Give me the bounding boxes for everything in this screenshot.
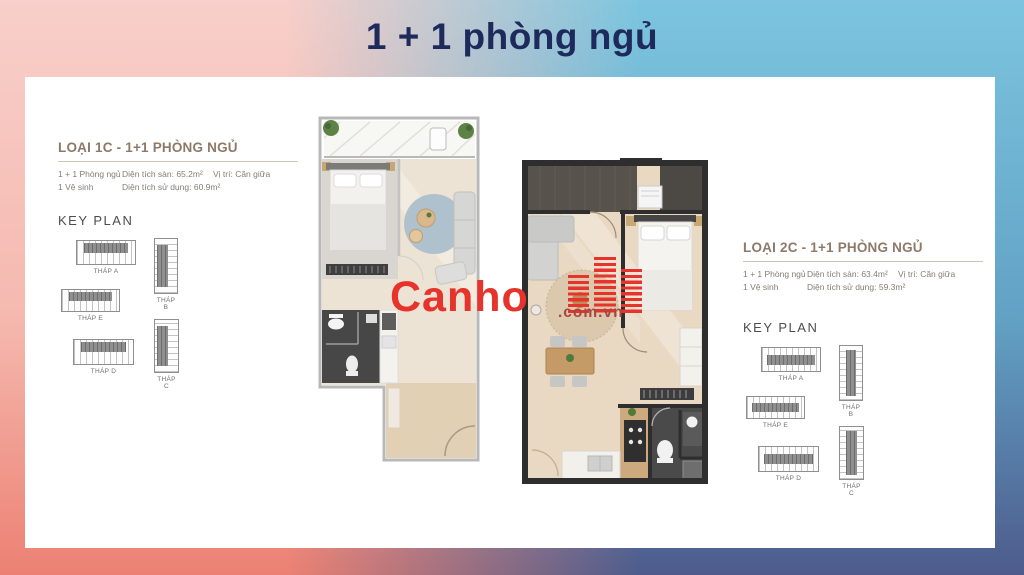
watermark-brand: Canho <box>390 276 529 319</box>
watermark: Canho .com.vn <box>390 280 720 350</box>
tower-label: THÁP A <box>761 375 821 382</box>
balcony <box>525 163 705 212</box>
keyplan-tower: THÁP C <box>154 319 179 390</box>
bathroom <box>322 310 380 383</box>
keyplan-diagram: THÁP ATHÁP BTHÁP ETHÁP DTHÁP C <box>58 232 238 397</box>
tower-label: THÁP C <box>154 376 179 390</box>
unit-1c-heading: LOẠI 1C - 1+1 PHÒNG NGỦ <box>58 140 323 155</box>
tower-footprint-icon <box>73 339 134 365</box>
spec-floor-area: Diện tích sàn: 65.2m² <box>122 169 203 179</box>
tower-footprint-icon <box>839 426 864 480</box>
tower-footprint-icon <box>61 289 120 312</box>
keyplan-title: KEY PLAN <box>58 214 323 228</box>
keyplan-tower: THÁP E <box>61 289 120 322</box>
tower-footprint-icon <box>761 347 821 372</box>
tower-footprint-icon <box>154 319 179 373</box>
tower-label: THÁP E <box>746 422 805 429</box>
spec-bedrooms: 1 + 1 Phòng ngủ <box>58 169 121 179</box>
unit-1c-specs: 1 + 1 Phòng ngủ Diện tích sàn: 65.2m² Vị… <box>58 169 323 195</box>
tower-label: THÁP D <box>758 475 819 482</box>
tower-footprint-icon <box>758 446 819 472</box>
tower-footprint-icon <box>154 238 178 294</box>
unit-2c-heading: LOẠI 2C - 1+1 PHÒNG NGỦ <box>743 240 1008 255</box>
tower-footprint-icon <box>746 396 805 419</box>
keyplan-diagram: THÁP ATHÁP BTHÁP ETHÁP DTHÁP C <box>743 339 923 504</box>
keyplan-tower: THÁP B <box>154 238 178 311</box>
bedroom <box>322 159 398 279</box>
keyplan-tower: THÁP D <box>73 339 134 375</box>
tower-label: THÁP C <box>839 483 864 497</box>
content-card: LOẠI 1C - 1+1 PHÒNG NGỦ 1 + 1 Phòng ngủ … <box>25 77 995 548</box>
keyplan-title: KEY PLAN <box>743 321 1008 335</box>
tower-label: THÁP D <box>73 368 134 375</box>
tower-label: THÁP E <box>61 315 120 322</box>
spec-bathrooms: 1 Vệ sinh <box>58 182 93 192</box>
spec-bedrooms: 1 + 1 Phòng ngủ <box>743 269 806 279</box>
balcony <box>323 120 475 157</box>
tower-label: THÁP A <box>76 268 136 275</box>
keyplan-tower: THÁP E <box>746 396 805 429</box>
slide: 1 + 1 phòng ngủ LOẠI 1C - 1+1 PHÒNG NGỦ … <box>0 0 1024 575</box>
unit-2c-panel: LOẠI 2C - 1+1 PHÒNG NGỦ 1 + 1 Phòng ngủ … <box>743 240 1008 504</box>
watermark-domain: .com.vn <box>558 304 624 322</box>
spec-floor-area: Diện tích sàn: 63.4m² <box>807 269 888 279</box>
unit-2c-specs: 1 + 1 Phòng ngủ Diện tích sàn: 63.4m² Vị… <box>743 269 1008 295</box>
spec-position: Vị trí: Căn giữa <box>213 169 270 179</box>
keyplan-tower: THÁP A <box>761 347 821 382</box>
unit-1c-panel: LOẠI 1C - 1+1 PHÒNG NGỦ 1 + 1 Phòng ngủ … <box>58 140 323 397</box>
spec-position: Vị trí: Căn giữa <box>898 269 955 279</box>
tower-footprint-icon <box>839 345 863 401</box>
spec-bathrooms: 1 Vệ sinh <box>743 282 778 292</box>
slide-title: 1 + 1 phòng ngủ <box>0 16 1024 58</box>
keyplan-tower: THÁP A <box>76 240 136 275</box>
tower-footprint-icon <box>76 240 136 265</box>
divider <box>743 261 983 262</box>
spec-usable-area: Diện tích sử dụng: 59.3m² <box>807 282 905 292</box>
keyplan-tower: THÁP D <box>758 446 819 482</box>
tower-label: THÁP B <box>839 404 863 418</box>
keyplan-tower: THÁP C <box>839 426 864 497</box>
keyplan-tower: THÁP B <box>839 345 863 418</box>
tower-label: THÁP B <box>154 297 178 311</box>
spec-usable-area: Diện tích sử dụng: 60.9m² <box>122 182 220 192</box>
divider <box>58 161 298 162</box>
